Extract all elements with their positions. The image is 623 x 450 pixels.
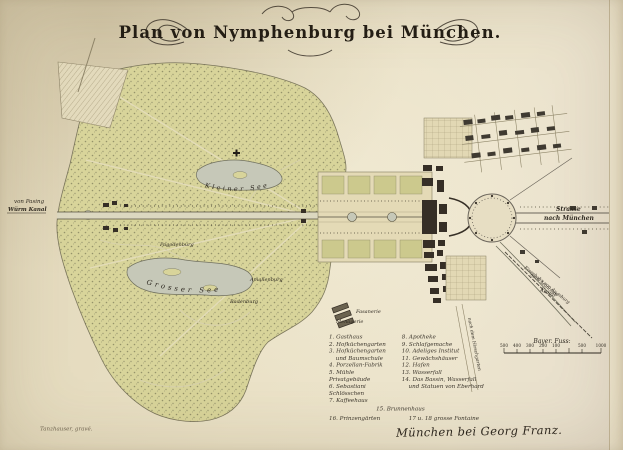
page-edge (609, 0, 623, 450)
svg-text:1000: 1000 (596, 343, 607, 348)
legend-item: 11. Gewächshäuser (402, 355, 486, 362)
svg-text:200: 200 (539, 343, 547, 348)
legend-item: 13. Wasserfall (402, 369, 486, 376)
legend-item: 15. Brunnenhaus (329, 406, 472, 413)
svg-text:400: 400 (513, 343, 521, 348)
von-pasing-label: von Pasing (14, 199, 45, 205)
map-sheet: Plan von Nymphenburg bei München. Kleine… (0, 0, 623, 450)
legend-column-1: 1. Gasthaus 2. Hofküchengarten 3. Hofküc… (329, 334, 396, 405)
town-grid (459, 104, 573, 175)
grosse-fontaine-east (388, 213, 397, 222)
legend-item: 14. Das Bassin, Wasserfall (402, 376, 486, 383)
legend-item: 12. Hafen (402, 362, 486, 369)
badenburg-label: Badenburg (229, 299, 258, 305)
svg-text:500: 500 (578, 343, 586, 348)
wuerm-kanal-label: Würm Kanal (8, 206, 47, 213)
map-title: Plan von Nymphenburg bei München. (119, 23, 502, 42)
legend-item: 8. Apotheke (402, 334, 486, 341)
legend-item: 5. Mühle Privatgebäude (329, 369, 396, 383)
title-cartouche: Plan von Nymphenburg bei München. (119, 4, 502, 56)
legend-column-2: 8. Apotheke 9. Schlafgemache 10. Adelige… (402, 334, 486, 405)
legend-item: 3. Hofküchengarten (329, 348, 396, 355)
strasse-label: Strasse (556, 206, 581, 213)
svg-text:300: 300 (526, 343, 534, 348)
legend-item: 7. Kaffeehaus (329, 397, 396, 404)
legend-item: 6. Sebastiani Schlösschen (329, 383, 396, 397)
scale-bar: Bayer. Fuss: 500 400 300 200 100 500 100… (500, 338, 607, 353)
legend: 1. Gasthaus 2. Hofküchengarten 3. Hofküc… (329, 334, 497, 423)
menagerie-label: Menagerie (335, 319, 363, 325)
svg-text:500: 500 (500, 343, 508, 348)
map-canvas: Plan von Nymphenburg bei München. Kleine… (0, 0, 623, 450)
legend-item: 17 u. 18 grosse Fontaine (409, 415, 479, 422)
legend-item: und Statuen von Eberhard (402, 383, 486, 390)
legend-item: 4. Porzellan-Fabrik (329, 362, 396, 369)
legend-item: 1. Gasthaus (329, 334, 396, 341)
legend-item: und Baumschule (329, 355, 396, 362)
amalienburg-label: Amalienburg (249, 277, 283, 283)
svg-text:100: 100 (552, 343, 560, 348)
formal-gardens (318, 172, 432, 262)
grosse-fontaine-west (348, 213, 357, 222)
nach-muenchen-label: nach München (544, 215, 594, 222)
legend-item: 10. Adeliges Institut (402, 348, 486, 355)
legend-item: 9. Schlafgemache (402, 341, 486, 348)
legend-item: 16. Prinzengärten (329, 415, 380, 422)
engraver-credit: Tanzhauser, gravé. (40, 426, 150, 432)
fasanerie-label: Fasanerie (355, 309, 381, 315)
legend-item: 2. Hofküchengarten (329, 341, 396, 348)
scale-ticks: 500 400 300 200 100 500 1000 (500, 343, 607, 348)
pagodenburg-label: Pagodenburg (159, 242, 194, 248)
